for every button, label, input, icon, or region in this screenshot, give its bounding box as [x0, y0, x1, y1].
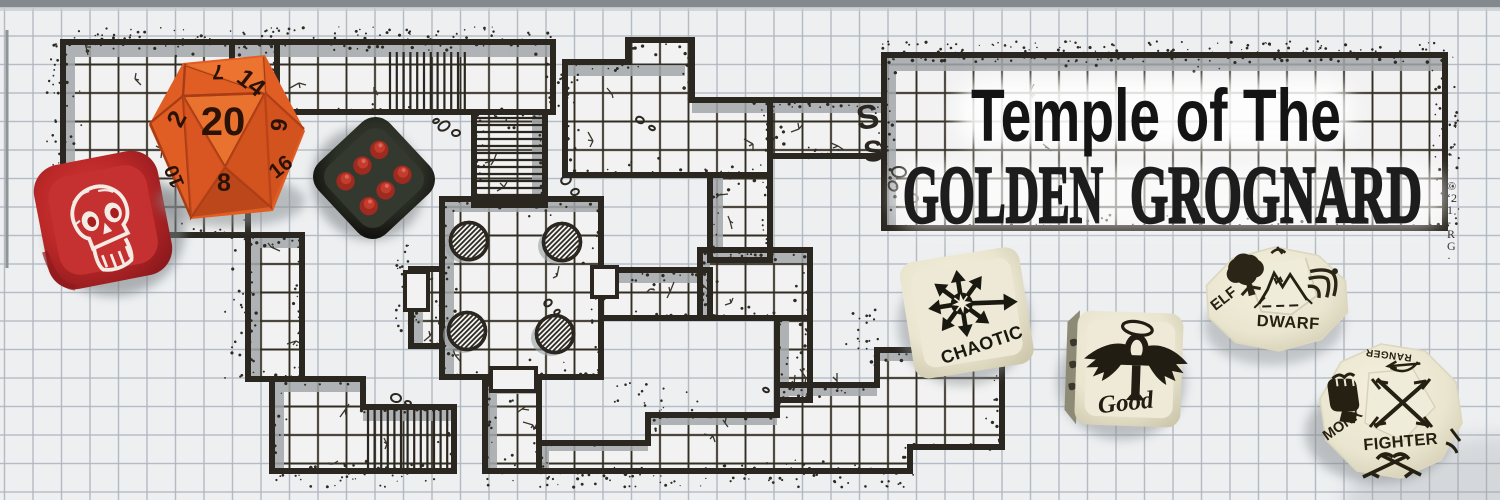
- svg-text:DWARF: DWARF: [1256, 312, 1320, 333]
- svg-text:8: 8: [217, 169, 231, 197]
- svg-text:Temple of The: Temple of The: [971, 74, 1341, 157]
- svg-text:GROGNARD: GROGNARD: [1130, 149, 1422, 240]
- svg-text:·: ·: [1447, 251, 1451, 265]
- svg-text:GOLDEN: GOLDEN: [903, 149, 1103, 240]
- svg-text:7: 7: [212, 60, 224, 83]
- svg-text:20: 20: [201, 100, 246, 144]
- svg-text:S: S: [862, 135, 884, 169]
